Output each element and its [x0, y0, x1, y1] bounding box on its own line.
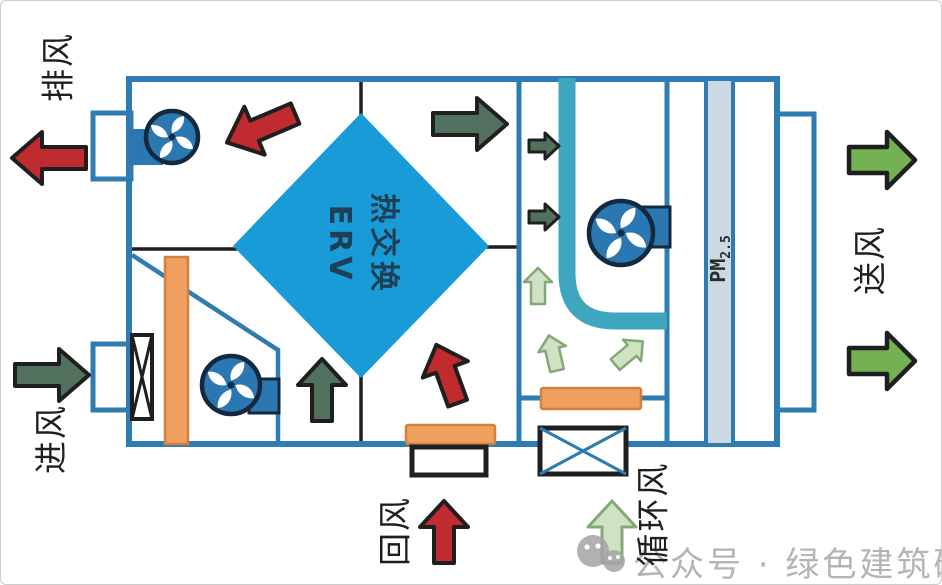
circulation-small-arrow-3-icon: [606, 331, 652, 376]
fresh-air-out-arrow-icon: [433, 98, 507, 150]
supply-duct-opening: [777, 114, 814, 410]
circulation-small-arrow-2-icon: [535, 332, 570, 373]
fresh-air-small-arrow-bottom-icon: [529, 204, 559, 230]
supply-fan: [589, 201, 670, 265]
return-air-duct: [412, 447, 486, 475]
pm25-filter-strip: [706, 79, 733, 445]
circulation-filter-bar: [541, 388, 641, 409]
intake-coarse-filter: [132, 335, 152, 419]
intake-duct-opening: [93, 344, 131, 410]
exhaust-fan: [129, 111, 198, 165]
intake-fan: [202, 356, 279, 414]
return-air-arrow-icon: [420, 501, 468, 563]
exhaust-flow-arrow-icon: [217, 90, 305, 167]
watermark-text: 公众号 · 绿色建筑研习社: [633, 537, 942, 585]
intake-up-arrow-icon: [298, 359, 346, 421]
erv-diagram: 公众号 · 绿色建筑研习社 排风 进风 回风 循环风 送风 热交换 ERV PM…: [0, 0, 942, 585]
intake-in-arrow-icon: [15, 349, 89, 401]
intake-filter-vertical: [165, 257, 188, 444]
supply-arrow-top-icon: [849, 132, 915, 188]
return-filter-bar: [406, 425, 495, 444]
diagram-canvas: [1, 1, 942, 585]
exhaust-out-arrow-icon: [12, 132, 86, 184]
erv-core-diamond: [233, 113, 489, 378]
fresh-air-small-arrow-top-icon: [529, 133, 559, 159]
circulation-air-duct: [540, 428, 626, 474]
wechat-icon: [567, 525, 637, 585]
circulation-small-arrow-1-icon: [524, 268, 552, 304]
supply-arrow-bottom-icon: [849, 333, 915, 389]
return-mix-arrow-icon: [414, 337, 480, 412]
exhaust-duct-opening: [93, 113, 131, 179]
